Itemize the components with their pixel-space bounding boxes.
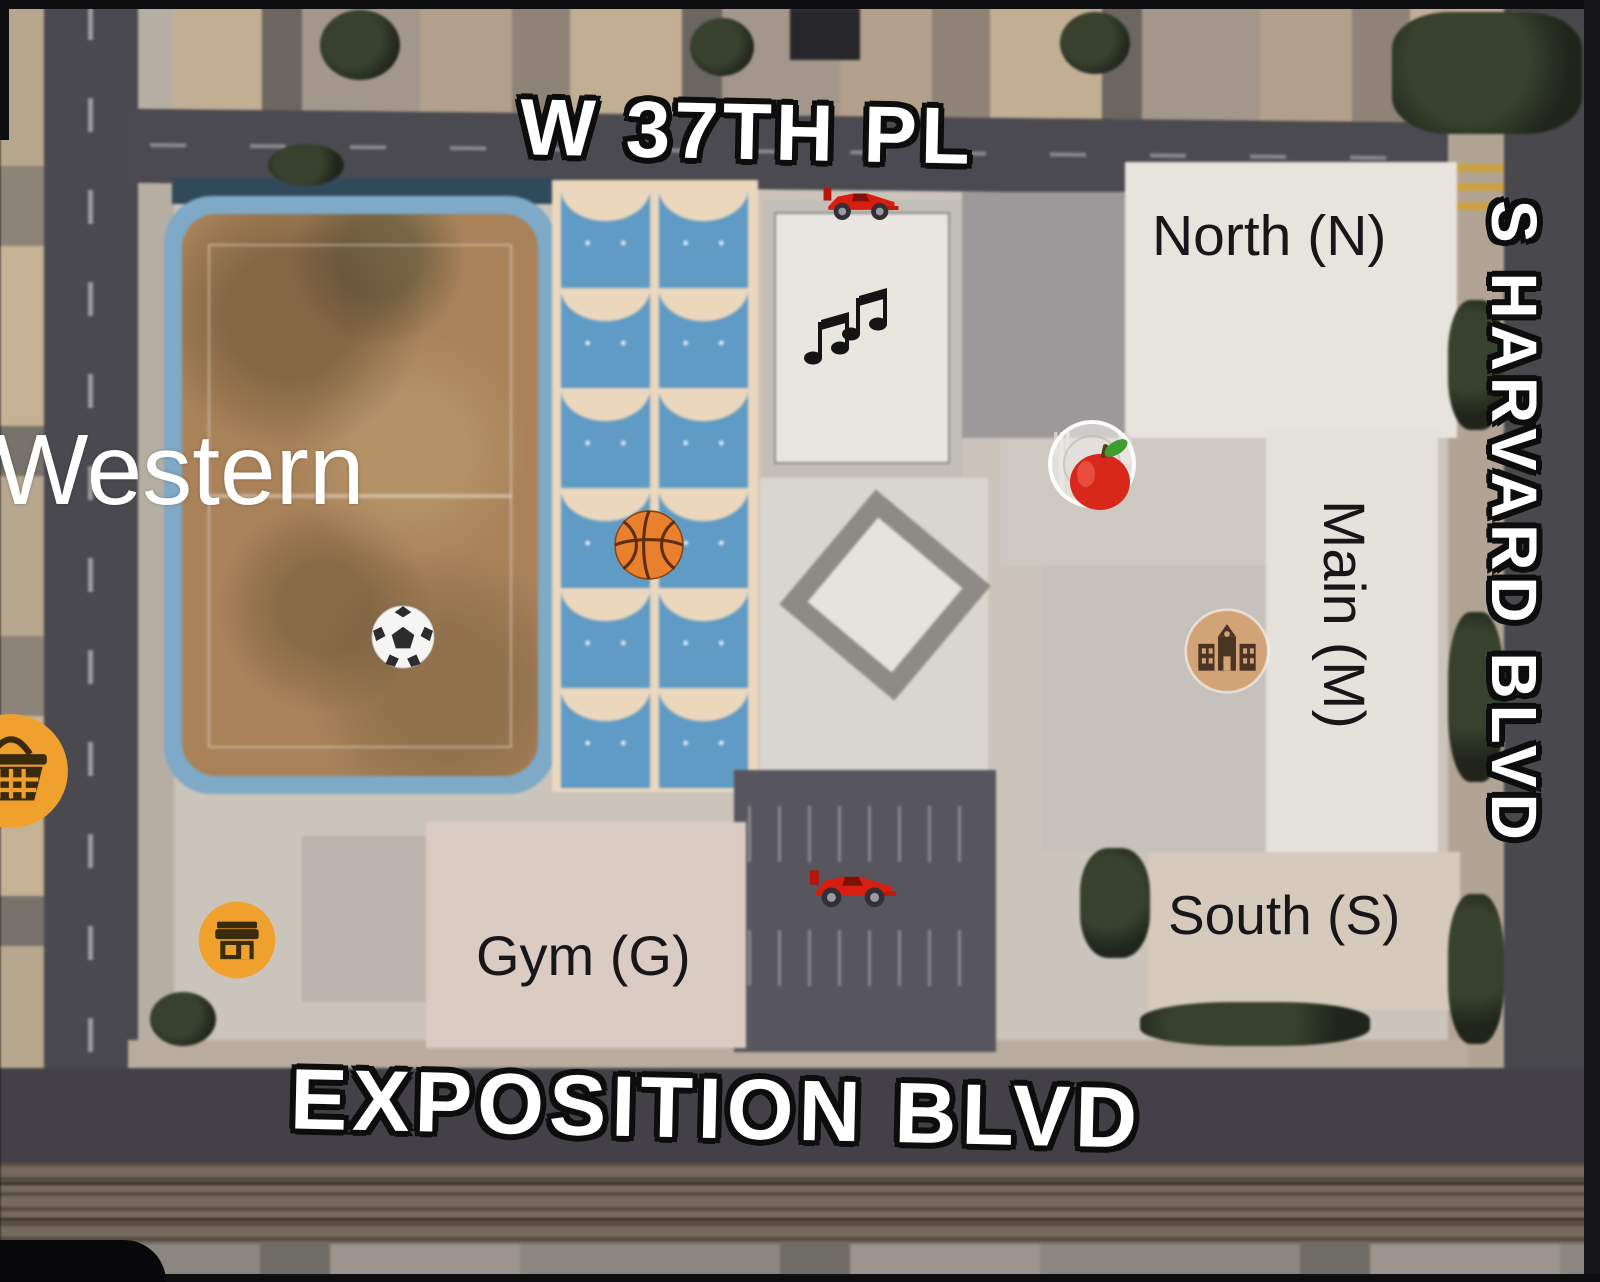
building-label-gym: Gym (G) bbox=[476, 928, 691, 984]
frame-top bbox=[0, 0, 1600, 9]
racing-car-icon bbox=[808, 852, 898, 914]
tree bbox=[1392, 12, 1582, 134]
tree bbox=[268, 144, 344, 186]
rail-line bbox=[0, 1182, 1600, 1185]
building-label-south: South (S) bbox=[1168, 888, 1400, 943]
rail-line bbox=[0, 1218, 1600, 1221]
plate-fork-knife-icon bbox=[1022, 396, 1162, 536]
street-label-harvard: S HARVARD BLVD bbox=[1482, 200, 1546, 846]
tree bbox=[1080, 848, 1150, 958]
frame-left-sliver bbox=[0, 0, 9, 140]
parking-stalls bbox=[748, 930, 982, 986]
musical-notes-icon bbox=[798, 278, 898, 378]
tree bbox=[150, 992, 216, 1046]
school-poi-icon[interactable] bbox=[1184, 608, 1270, 694]
satellite-map[interactable]: W 37TH PL S HARVARD BLVD EXPOSITION BLVD… bbox=[0, 0, 1600, 1282]
frame-right bbox=[1584, 0, 1600, 1282]
tree bbox=[320, 10, 400, 80]
street-label-exposition: EXPOSITION BLVD bbox=[289, 1056, 1143, 1161]
basketball-court-column bbox=[659, 188, 748, 788]
tree bbox=[1140, 1002, 1370, 1046]
frame-bottom bbox=[0, 1274, 1600, 1282]
tree bbox=[1060, 12, 1130, 74]
building-label-north: North (N) bbox=[1152, 208, 1386, 265]
dark-roof bbox=[790, 8, 860, 60]
convenience-store-poi-icon[interactable] bbox=[197, 900, 277, 980]
bottom-lot-strip bbox=[0, 1244, 1600, 1278]
bottom-card-corner bbox=[0, 1240, 166, 1282]
racing-car-icon bbox=[822, 172, 900, 226]
tree bbox=[1448, 894, 1504, 1044]
basketball-icon bbox=[612, 508, 686, 582]
railway-tracks bbox=[0, 1162, 1600, 1246]
soccer-ball-icon bbox=[370, 604, 436, 670]
grocery-basket-poi-icon[interactable] bbox=[0, 712, 70, 830]
street-label-western: Western bbox=[0, 420, 365, 520]
tree bbox=[690, 18, 754, 76]
basketball-court-column bbox=[561, 188, 650, 788]
gym-annex-building bbox=[302, 836, 428, 1002]
street-label-w37th: W 37TH PL bbox=[519, 87, 974, 176]
building-label-main: Main (M) bbox=[1314, 500, 1372, 729]
